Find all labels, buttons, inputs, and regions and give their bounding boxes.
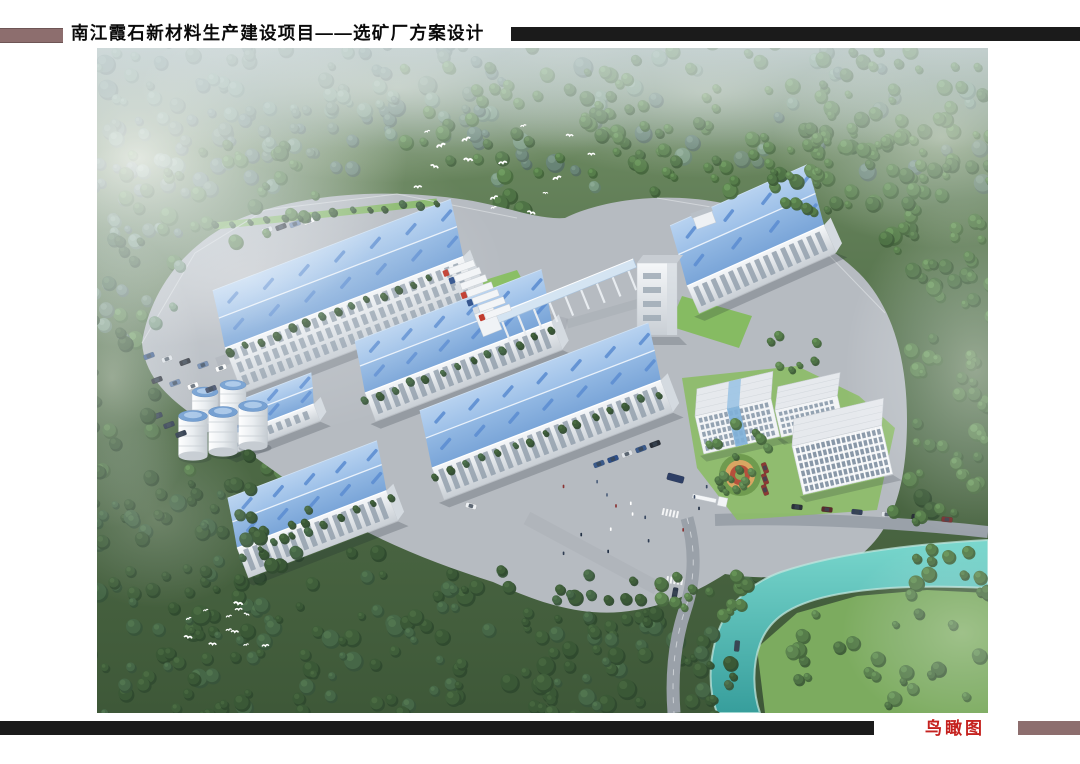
bird — [588, 153, 595, 154]
person — [706, 485, 708, 489]
person — [606, 493, 608, 497]
footer-rule-bar — [0, 721, 874, 735]
page-title: 南江霞石新材料生产建设项目——选矿厂方案设计 — [71, 20, 485, 45]
person — [682, 528, 684, 532]
person — [632, 512, 634, 516]
person — [644, 516, 646, 520]
person — [610, 527, 612, 531]
aerial-scene — [97, 48, 988, 713]
bird — [543, 192, 548, 193]
caption: 鸟瞰图 — [900, 714, 1010, 739]
header-accent-bar — [0, 28, 63, 43]
person — [648, 539, 650, 543]
person — [563, 551, 565, 555]
person — [694, 495, 696, 499]
person — [698, 507, 700, 511]
person — [630, 502, 632, 506]
car — [821, 506, 832, 512]
car — [791, 504, 802, 510]
footer-accent-bar — [1018, 721, 1080, 735]
person — [607, 550, 609, 554]
person — [563, 485, 565, 489]
birdseye-rendering — [97, 48, 988, 713]
presentation-board: 南江霞石新材料生产建设项目——选矿厂方案设计 — [0, 0, 1080, 764]
header-rule-bar — [511, 27, 1080, 41]
person — [615, 504, 617, 508]
person — [596, 480, 598, 484]
car — [851, 509, 862, 515]
person — [580, 533, 582, 537]
car — [734, 640, 740, 651]
